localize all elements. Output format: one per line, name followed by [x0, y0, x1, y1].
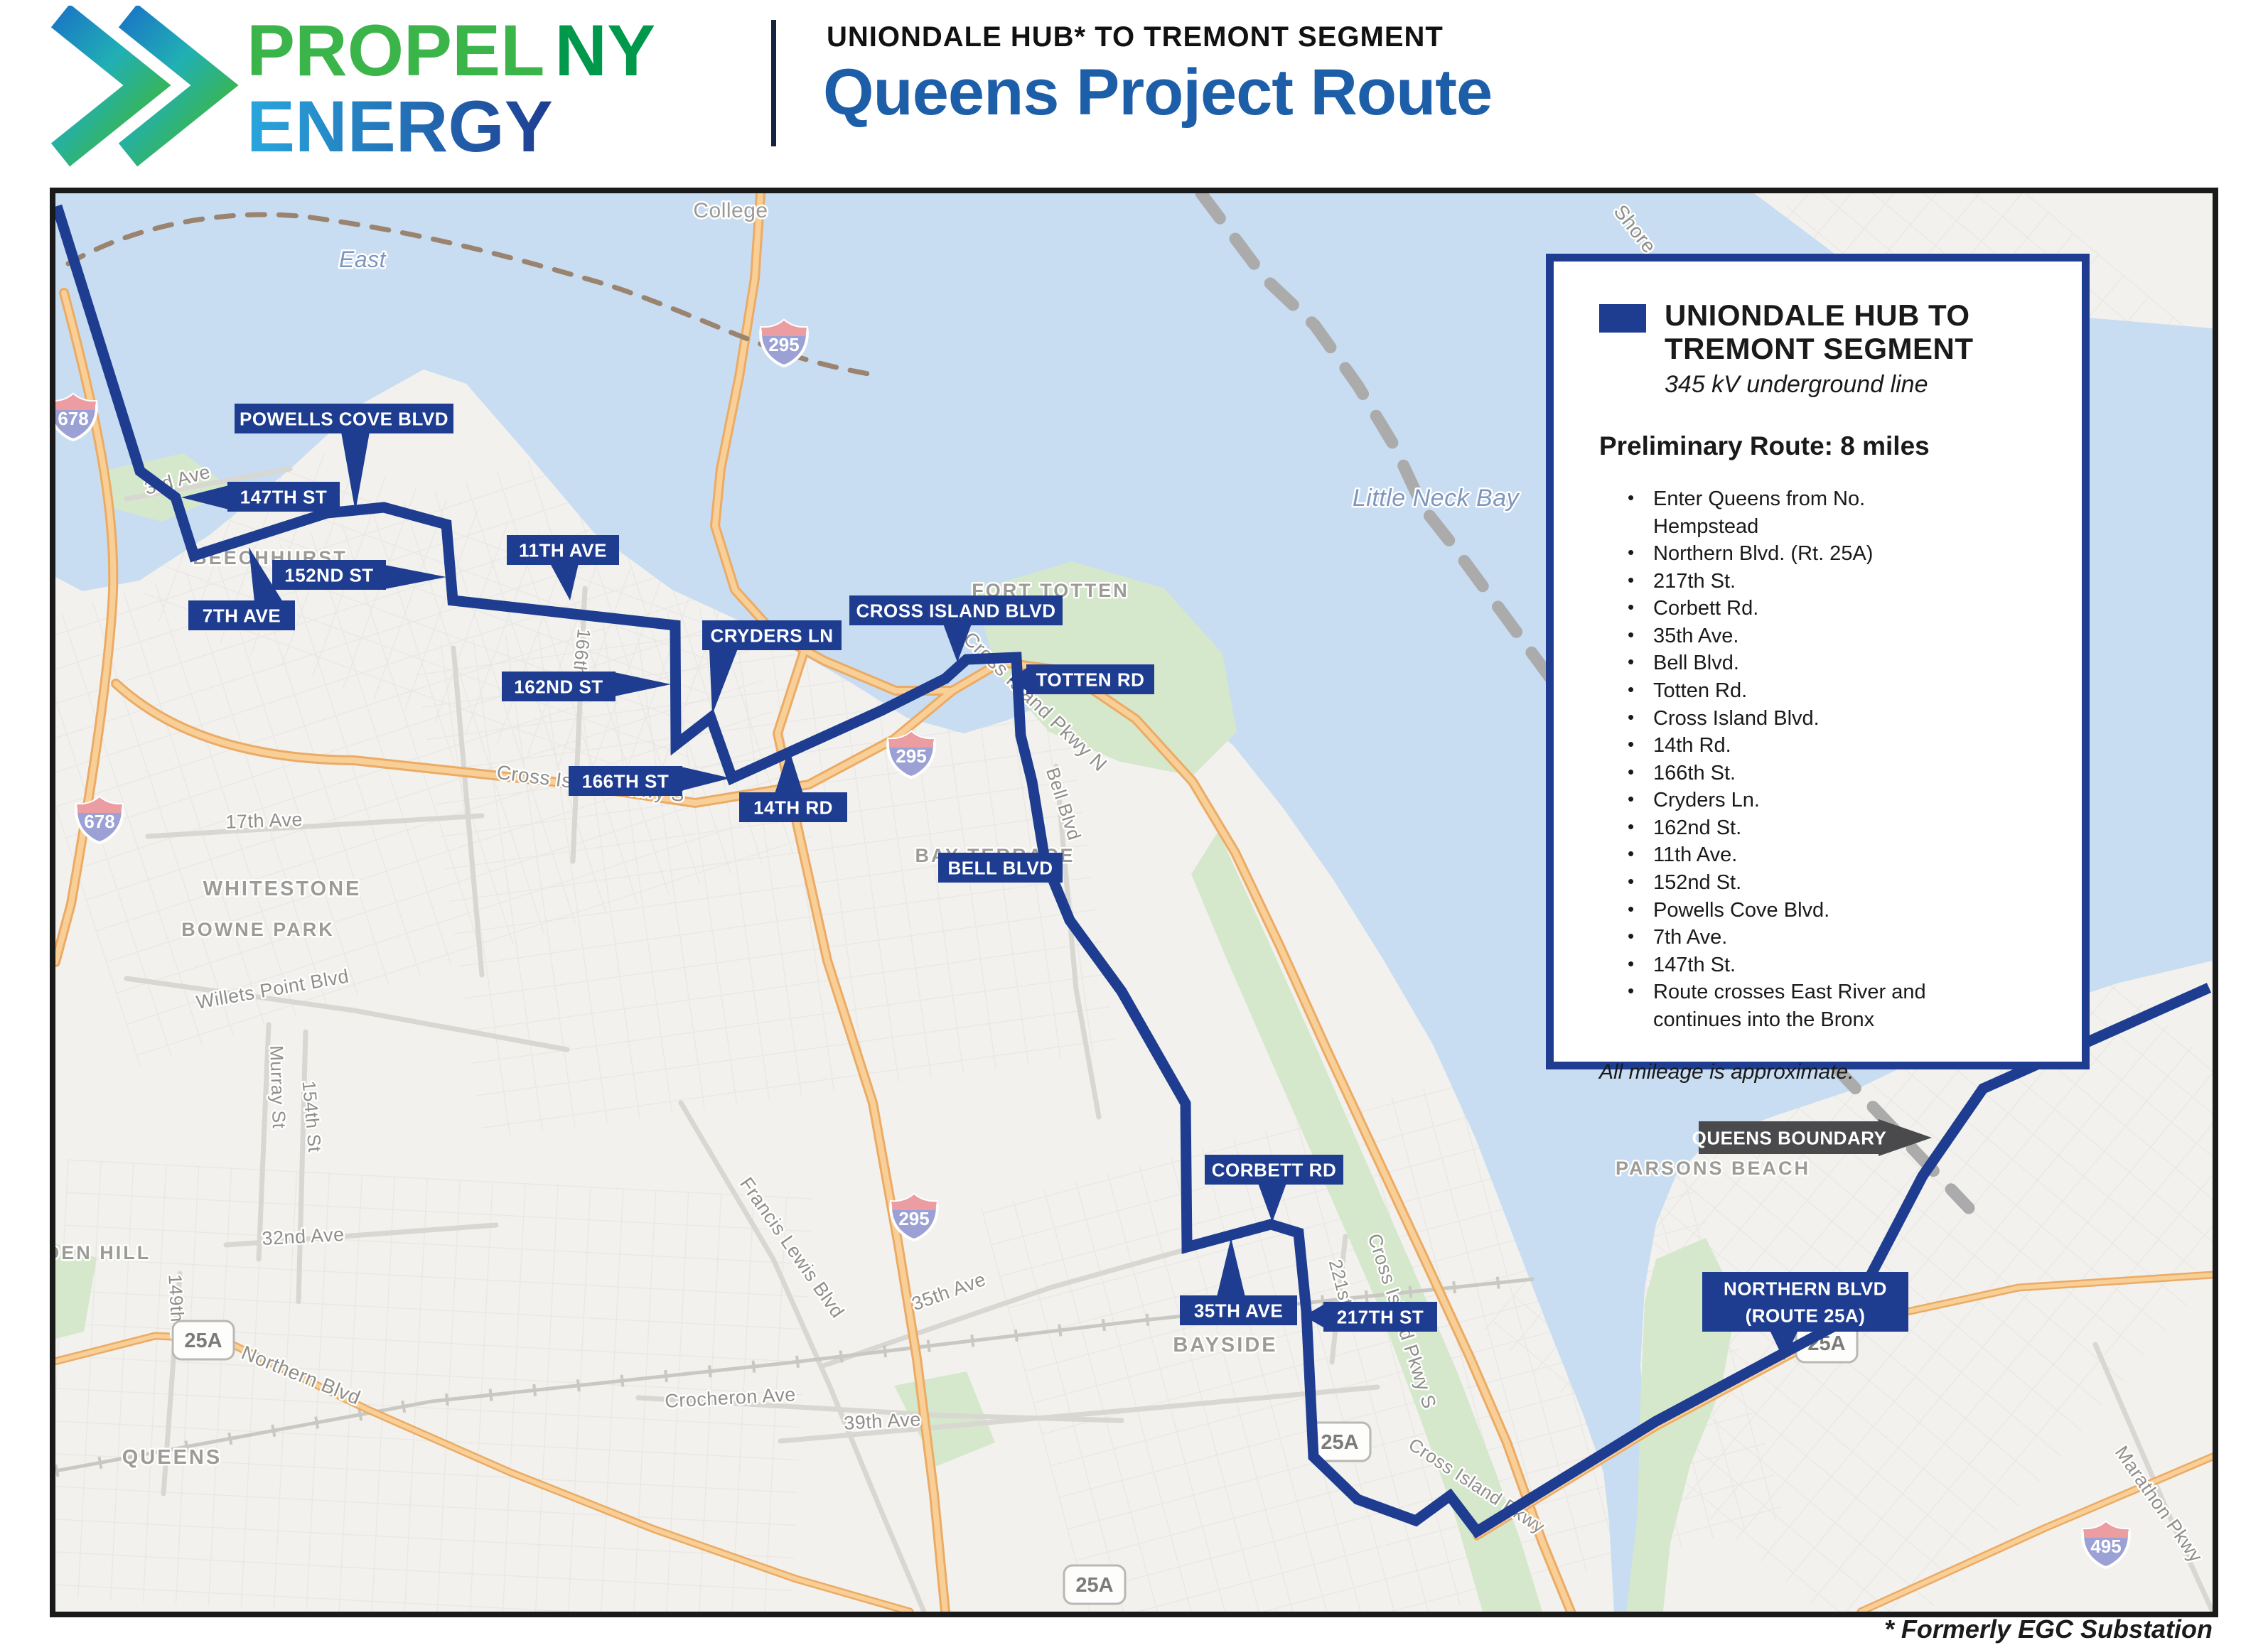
svg-text:678: 678 — [84, 811, 114, 832]
legend-bullet: 147th St. — [1628, 951, 1959, 979]
map-label-queens: QUEENS — [122, 1446, 222, 1469]
legend-title-line2: TREMONT SEGMENT — [1665, 332, 1974, 365]
callout-label: 166TH ST — [582, 771, 670, 792]
map-label-little-neck-bay: Little Neck Bay — [1353, 485, 1520, 512]
callout-label: QUEENS BOUNDARY — [1692, 1128, 1887, 1149]
map-label-east: East — [339, 247, 387, 272]
legend-bullet: Cross Island Blvd. — [1628, 705, 1959, 733]
brand-word-propel: PROPELNY — [247, 10, 655, 91]
callout-label: 162ND ST — [514, 676, 603, 698]
brand-word-energy: ENERGY — [247, 86, 553, 167]
legend-bullet: 162nd St. — [1628, 814, 1959, 842]
map-label-parsons-beach: PARSONS BEACH — [1616, 1158, 1810, 1179]
svg-text:495: 495 — [2090, 1536, 2121, 1557]
svg-text:678: 678 — [58, 408, 88, 429]
map-label-whitestone: WHITESTONE — [203, 878, 362, 900]
callout-totten-rd: TOTTEN RD — [1009, 664, 1154, 694]
header: PROPELNY ENERGY UNIONDALE HUB* TO TREMON… — [0, 0, 2268, 188]
callout-label: POWELLS COVE BLVD — [240, 409, 448, 430]
callout-bell-blvd: BELL BLVD — [938, 853, 1063, 883]
callout-label: 147TH ST — [240, 487, 328, 508]
legend-title-line1: UNIONDALE HUB TO — [1665, 298, 1974, 332]
legend-bullet: Powells Cove Blvd. — [1628, 897, 1959, 924]
legend-bullet: 35th Ave. — [1628, 622, 1959, 650]
header-divider — [771, 20, 776, 146]
map-label-den-hill: DEN HILL — [55, 1242, 151, 1263]
callout-label: CROSS ISLAND BLVD — [856, 600, 1055, 622]
legend-note: All mileage is approximate. — [1599, 1060, 2043, 1084]
propel-ny-energy-logo: PROPELNY ENERGY — [39, 6, 736, 169]
callout-label: NORTHERN BLVD — [1724, 1278, 1887, 1300]
callout-label: 217TH ST — [1337, 1307, 1424, 1328]
svg-text:25A: 25A — [1075, 1574, 1113, 1597]
legend-bullet: Enter Queens from No. Hempstead — [1628, 485, 1959, 540]
map-label-bayside: BAYSIDE — [1173, 1334, 1277, 1357]
callout-label: 11TH AVE — [519, 540, 607, 561]
callout-label: CORBETT RD — [1212, 1160, 1336, 1181]
legend-bullet: Bell Blvd. — [1628, 649, 1959, 677]
legend-bullet: Corbett Rd. — [1628, 595, 1959, 622]
callout-label: 7TH AVE — [203, 605, 281, 627]
map-label-bowne-park: BOWNE PARK — [181, 919, 335, 940]
legend-bullet: Route crosses East River and continues i… — [1628, 978, 1959, 1033]
legend-box: UNIONDALE HUB TO TREMONT SEGMENT 345 kV … — [1546, 254, 2090, 1069]
legend-bullet: 152nd St. — [1628, 869, 1959, 897]
map-label-college: College — [693, 199, 768, 222]
callout-label: 35TH AVE — [1194, 1300, 1283, 1322]
legend-bullet: Totten Rd. — [1628, 677, 1959, 705]
page-title: Queens Project Route — [823, 55, 1492, 130]
legend-bullet: 7th Ave. — [1628, 924, 1959, 951]
callout-label: 152ND ST — [284, 565, 373, 586]
callout-label: 14TH RD — [753, 797, 833, 819]
map-label-39th-ave: 39th Ave — [844, 1408, 922, 1434]
segment-kicker: UNIONDALE HUB* TO TREMONT SEGMENT — [827, 21, 1444, 53]
map-label-32nd-ave: 32nd Ave — [262, 1224, 345, 1249]
map-label-murray-st: Murray St — [266, 1045, 290, 1129]
svg-text:295: 295 — [896, 745, 926, 767]
callout-label: CRYDERS LN — [710, 625, 833, 647]
callout-label: BELL BLVD — [948, 858, 1053, 879]
svg-text:295: 295 — [898, 1208, 929, 1229]
callout-label: (ROUTE 25A) — [1746, 1305, 1866, 1327]
footnote: * Formerly EGC Substation — [1573, 1614, 2213, 1644]
poster-page: PROPELNY ENERGY UNIONDALE HUB* TO TREMON… — [0, 0, 2268, 1650]
svg-text:295: 295 — [768, 334, 799, 355]
svg-text:25A: 25A — [1321, 1431, 1358, 1454]
route-shield-25A: 25A — [1064, 1565, 1125, 1604]
legend-bullet: 217th St. — [1628, 568, 1959, 595]
legend-bullet: 11th Ave. — [1628, 841, 1959, 869]
callout-217th-st: 217TH ST — [1304, 1302, 1437, 1332]
legend-subtitle: 345 kV underground line — [1665, 371, 1974, 399]
legend-bullet: 14th Rd. — [1628, 732, 1959, 760]
legend-bullet: 166th St. — [1628, 760, 1959, 787]
route-shield-25A: 25A — [173, 1321, 234, 1359]
brand-word-ny: NY — [554, 10, 655, 91]
svg-text:25A: 25A — [184, 1330, 222, 1352]
legend-route-swatch — [1599, 304, 1646, 333]
legend-bullet: Northern Blvd. (Rt. 25A) — [1628, 540, 1959, 568]
legend-bullet: Cryders Ln. — [1628, 787, 1959, 814]
callout-label: TOTTEN RD — [1036, 669, 1145, 691]
legend-route-heading: Preliminary Route: 8 miles — [1599, 431, 2043, 461]
map-label-17th-ave: 17th Ave — [225, 809, 303, 833]
chevron-icon — [60, 16, 215, 155]
legend-route-list: Enter Queens from No. HempsteadNorthern … — [1599, 485, 2043, 1033]
